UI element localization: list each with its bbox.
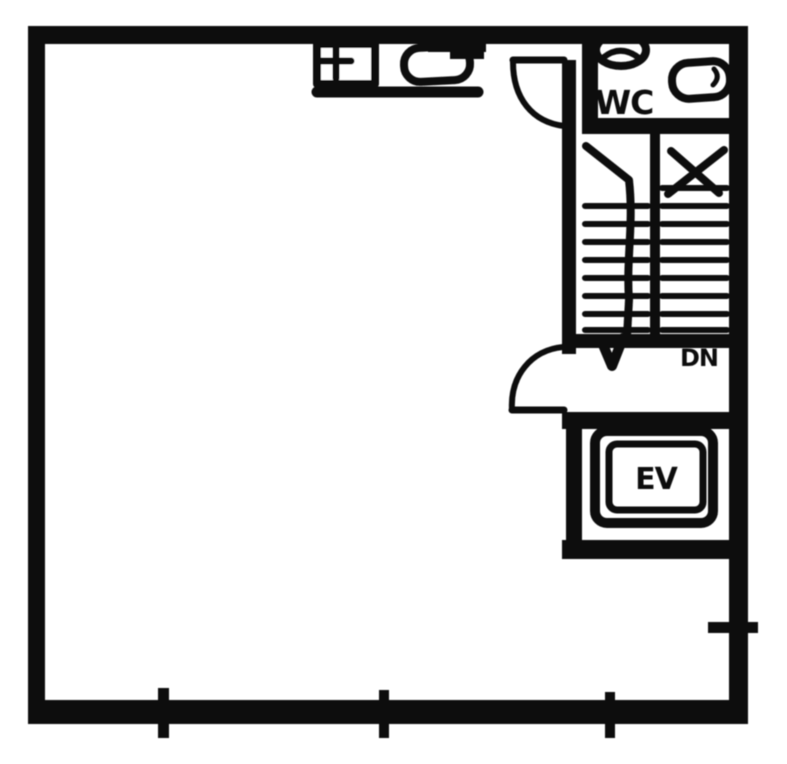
wc-door-swing: [513, 60, 564, 126]
stair-treads-left: [585, 206, 648, 330]
door-arc: [513, 62, 564, 126]
stair-west-wall: [562, 60, 576, 354]
wall-tick: [158, 688, 169, 738]
stair-dn-label: DN: [680, 344, 718, 372]
wash-basin-icon: [403, 45, 471, 82]
ev-west-wall: [566, 425, 582, 552]
basin-inner-line: [713, 69, 717, 85]
left-wall: [28, 26, 45, 718]
wc-room: WC: [582, 30, 732, 134]
stair-flight-divider: [650, 132, 660, 342]
toilet-seat-line: [604, 51, 639, 58]
ev-south-wall: [562, 540, 741, 559]
floor-plan-page: WC DN: [0, 0, 787, 764]
landing-door-swing: [512, 347, 564, 410]
floor-plan-canvas: WC DN: [0, 0, 787, 764]
wall-tick: [379, 690, 389, 738]
floor-plan-drawing: WC DN: [28, 26, 758, 738]
elevator-room: EV: [562, 412, 741, 559]
wall-tick: [708, 622, 758, 633]
wc-label: WC: [595, 83, 654, 122]
wall-tick: [605, 692, 615, 738]
urinal-basin-icon: [671, 60, 731, 100]
ev-label: EV: [635, 462, 678, 497]
door-arc: [512, 347, 563, 410]
stair-treads-right: [662, 188, 727, 330]
